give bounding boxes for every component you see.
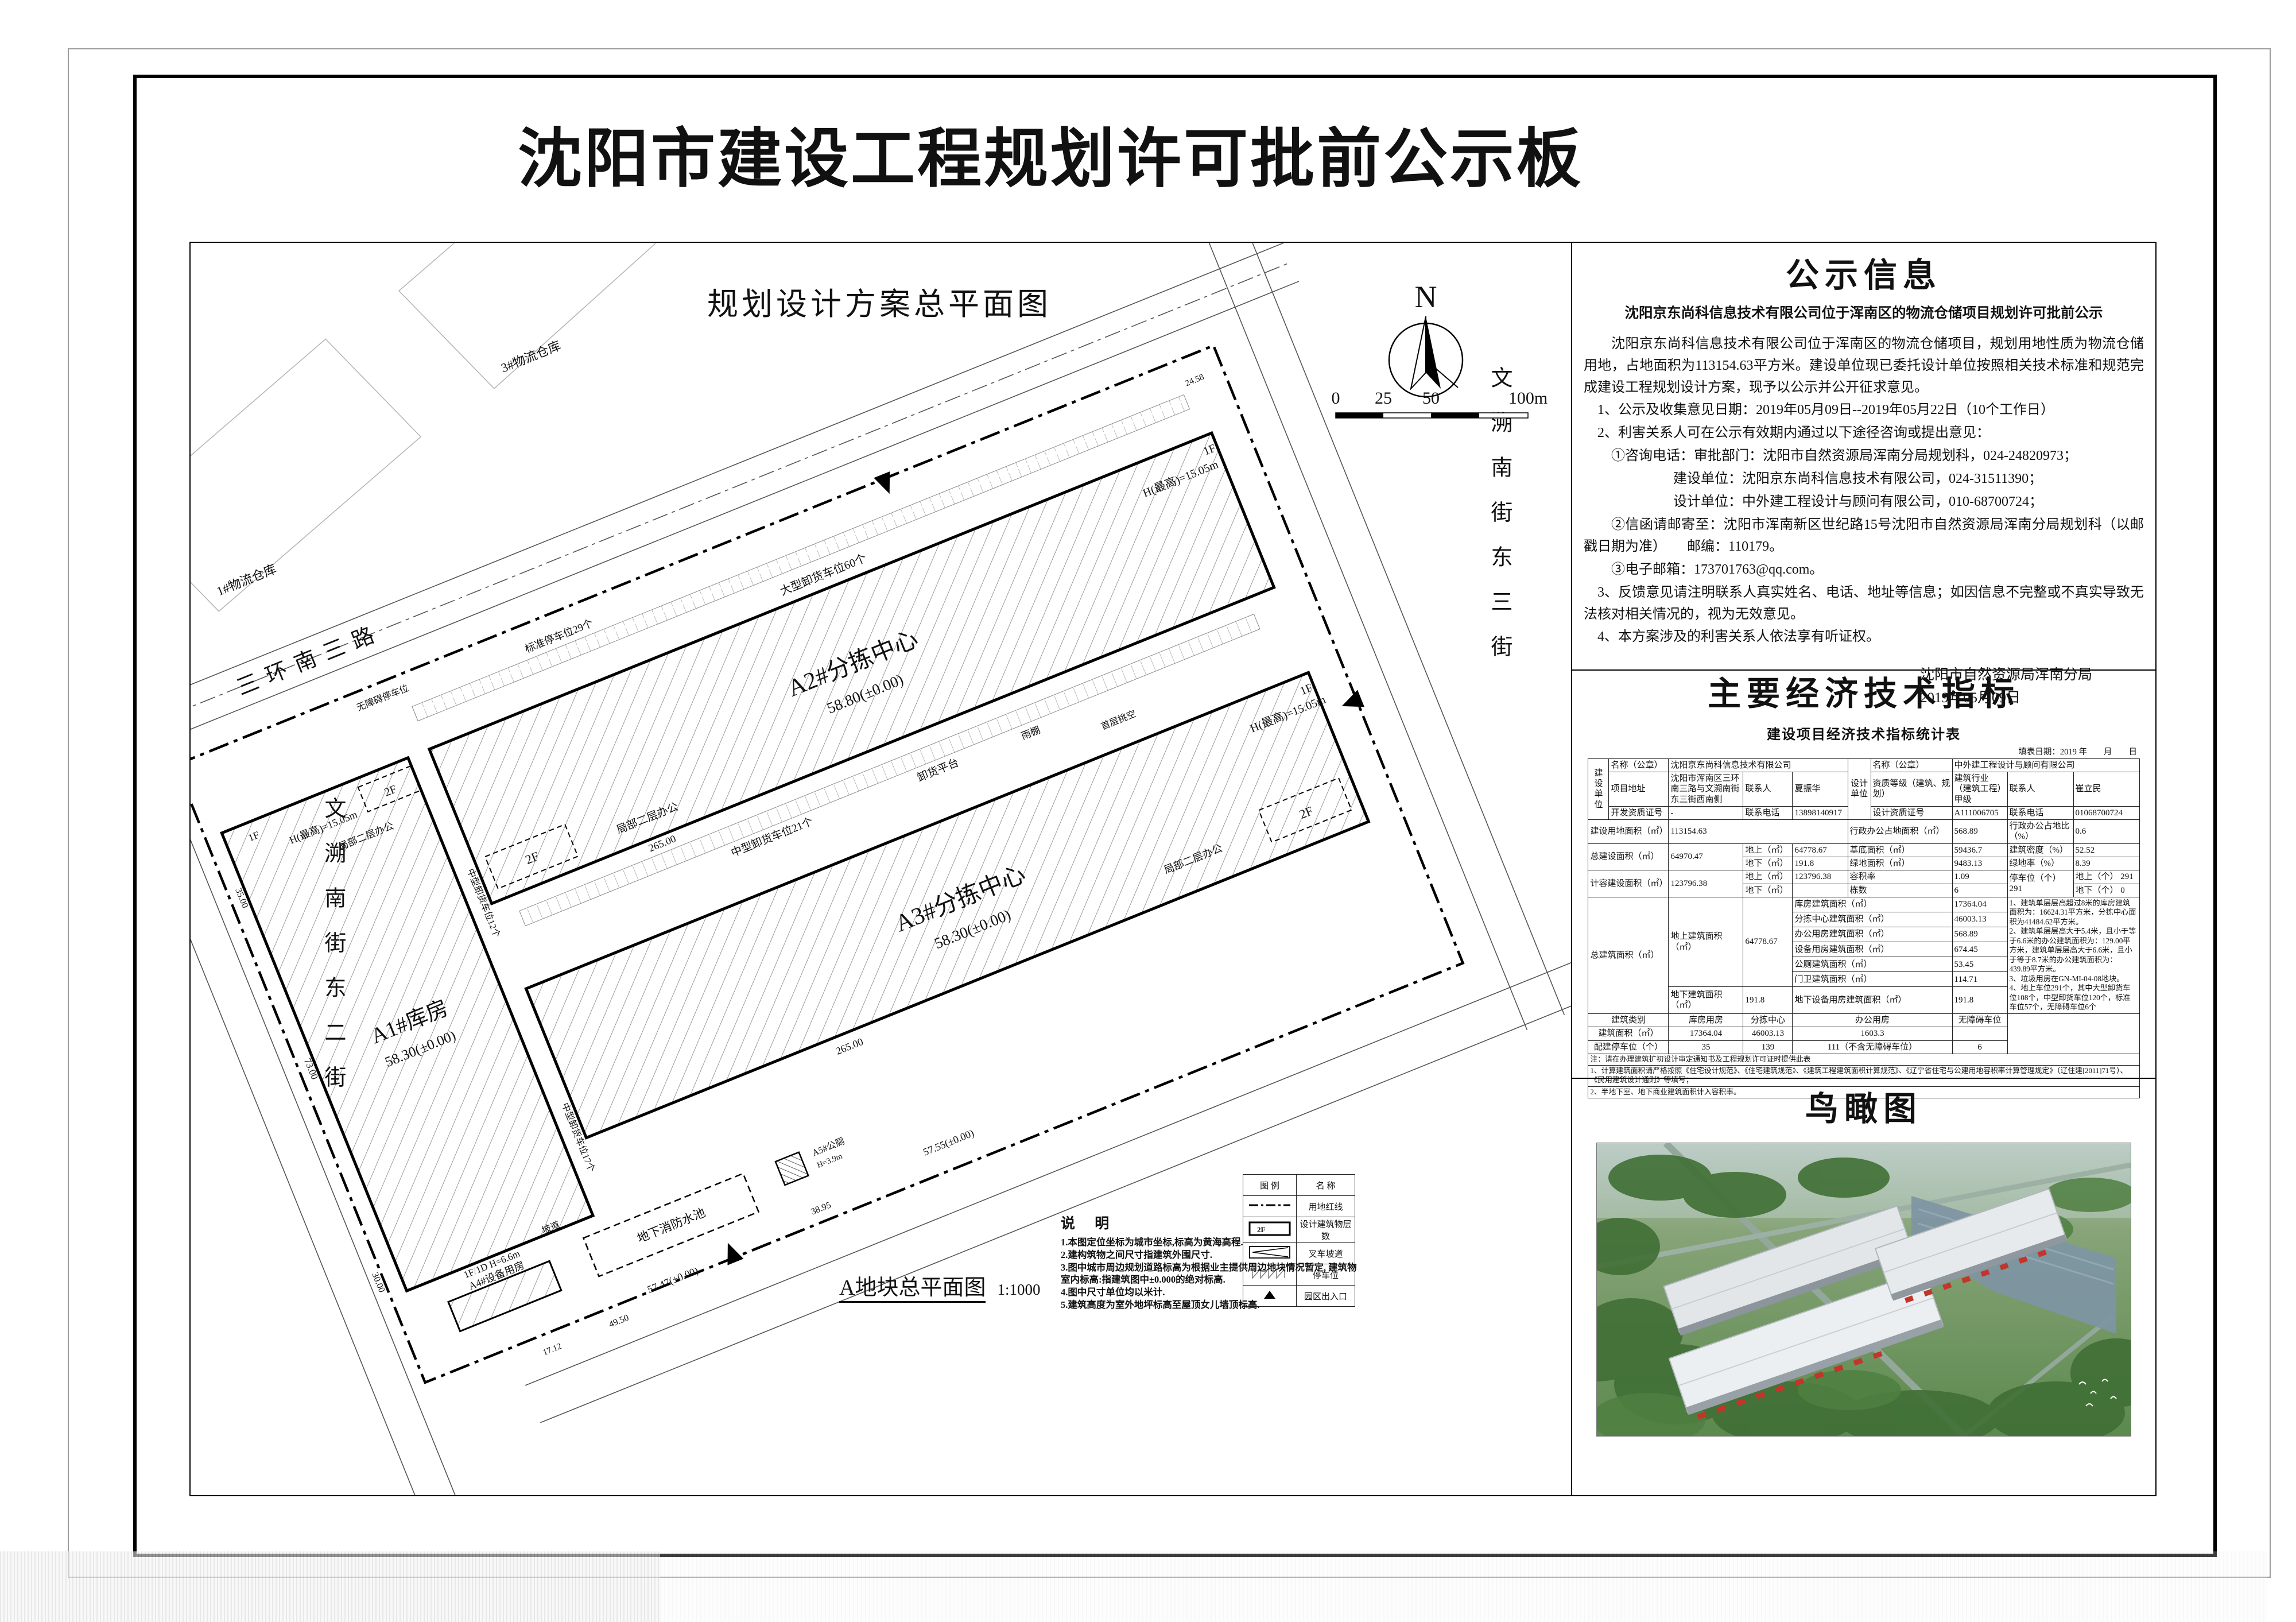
cell: 崔立民 xyxy=(2073,772,2139,806)
cell: 64778.67 xyxy=(1793,843,1848,857)
indicators-title: 主要经济技术指标 xyxy=(1572,675,2155,714)
table-row: 注：请在办理建筑扩初设计审定通知书及工程规划许可证时提供此表 xyxy=(1588,1054,2139,1066)
cell: 建筑类别 xyxy=(1588,1013,1669,1027)
parking-below-label: 地下（个） xyxy=(2076,886,2119,895)
cell: 114.71 xyxy=(1952,972,2007,987)
cell: 沈阳京东尚科信息技术有限公司 xyxy=(1669,758,1848,772)
cell: 行政办公占地比（%） xyxy=(2007,820,2073,844)
cell: 113154.63 xyxy=(1669,820,1848,844)
table-row: 建设单位 名称（公章） 沈阳京东尚科信息技术有限公司 设计单位 名称（公章） 中… xyxy=(1588,758,2139,772)
cell: 9483.13 xyxy=(1952,857,2007,870)
table-row: 建筑类别 库房用房 分拣中心 办公用房 无障碍车位 xyxy=(1588,1013,2139,1027)
table-notes: 1、建筑单层层高超过8米的库房建筑面积为：16624.31平方米，分拣中心面积为… xyxy=(2007,897,2139,1013)
cell: 191.8 xyxy=(1743,987,1793,1014)
table-row: 计容建设面积（㎡） 123796.38 地上（㎡） 123796.38 容积率 … xyxy=(1588,870,2139,884)
site-plan-drawing: A1#库房 58.30(±0.00) A2#分拣中心 58.80(±0.00) … xyxy=(191,243,1571,1495)
cell: 沈阳市浑南区三环南三路与文溯南街东三街西南侧 xyxy=(1669,772,1743,806)
notice-paragraph: 设计单位：中外建工程设计与顾问有限公司，010-68700724； xyxy=(1584,491,2144,513)
notice-paragraph: 沈阳京东尚科信息技术有限公司位于浑南区的物流仓储项目，规划用地性质为物流仓储用地… xyxy=(1584,334,2144,399)
cell: 分拣中心 xyxy=(1743,1013,1793,1027)
cell: 地下（㎡） xyxy=(1743,857,1793,870)
cell: 建筑行业（建筑工程）甲级 xyxy=(1952,772,2007,806)
cell: 公厕建筑面积（㎡） xyxy=(1793,957,1952,972)
cell: 开发资质证号 xyxy=(1609,806,1669,819)
cell: 办公用房建筑面积（㎡） xyxy=(1793,927,1952,942)
cell: 123796.38 xyxy=(1669,870,1743,897)
cell: 17364.04 xyxy=(1669,1027,1743,1040)
ann-void: 首层挑空 xyxy=(1099,709,1137,732)
indicators-table: 建设单位 名称（公章） 沈阳京东尚科信息技术有限公司 设计单位 名称（公章） 中… xyxy=(1588,758,2139,1099)
cell: 地上（㎡） xyxy=(1743,843,1793,857)
notice-paragraph: ①咨询电话：审批部门：沈阳市自然资源局浑南分局规划科，024-24820973； xyxy=(1584,446,2144,467)
cell: 46003.13 xyxy=(1952,912,2007,927)
cell: 联系电话 xyxy=(2007,806,2073,819)
cell: 名称（公章） xyxy=(1609,758,1669,772)
lv-3895: 38.95 xyxy=(809,1200,832,1217)
cell: 1.09 xyxy=(1952,870,2007,884)
cell: 办公用房 xyxy=(1793,1013,1952,1027)
lv-4950: 49.50 xyxy=(607,1313,630,1330)
cell: 123796.38 xyxy=(1793,870,1848,884)
ann-park-bf: 无障碍停车位 xyxy=(355,683,410,713)
building-a5 xyxy=(775,1152,808,1185)
cell: 基底面积（㎡） xyxy=(1848,843,1952,857)
cell: 地上（个） 291 xyxy=(2073,870,2139,884)
cell: 停车位（个） 291 xyxy=(2007,870,2073,897)
cell: 191.8 xyxy=(1952,987,2007,1014)
cell: 8.39 xyxy=(2073,857,2139,870)
plan-note-5: 5.建筑高度为室外地坪标高至屋顶女儿墙顶标高. xyxy=(1061,1299,1359,1311)
plan-note-3: 3.图中城市周边规划道路标高为根据业主提供周边地块情况暂定, 建筑物室内标高:指… xyxy=(1061,1261,1359,1287)
parking-above: 291 xyxy=(2120,872,2134,881)
notice-body: 沈阳京东尚科信息技术有限公司位于浑南区的物流仓储项目，规划用地性质为物流仓储用地… xyxy=(1584,334,2144,649)
cell: 联系电话 xyxy=(1743,806,1793,819)
indicators-table-title: 建设项目经济技术指标统计表 xyxy=(1572,723,2155,743)
cell: 夏振华 xyxy=(1793,772,1848,806)
cell: 联系人 xyxy=(2007,772,2073,806)
plan-caption-title: A地块总平面图 xyxy=(839,1276,986,1303)
plan-note-1: 1.本图定位坐标为城市坐标,标高为黄海高程. xyxy=(1061,1236,1359,1249)
cell: 地上建筑面积（㎡） xyxy=(1669,897,1743,986)
cell: 59436.7 xyxy=(1952,843,2007,857)
cell: 总建设面积（㎡） xyxy=(1588,843,1669,870)
scale-0: 0 xyxy=(1332,389,1340,408)
parking-total: 291 xyxy=(2010,884,2072,894)
cell: 53.45 xyxy=(1952,957,2007,972)
lv-5747: 57.47(±0.00) xyxy=(646,1264,700,1296)
cell: 资质等级（建筑、规划） xyxy=(1871,772,1952,806)
cell: A111006705 xyxy=(1952,806,2007,819)
legend-header-name: 名 称 xyxy=(1297,1175,1355,1196)
cell: 容积率 xyxy=(1848,870,1952,884)
cell: 64778.67 xyxy=(1743,897,1793,986)
cell: 计容建设面积（㎡） xyxy=(1588,870,1669,897)
cell: - xyxy=(1669,806,1743,819)
cell: 地下（个） 0 xyxy=(2073,884,2139,897)
notice-paragraph: 建设单位：沈阳京东尚科信息技术有限公司，024-31511390； xyxy=(1584,469,2144,490)
cell: 地下建筑面积（㎡） xyxy=(1669,987,1743,1014)
adjacent-label-3: 3#物流仓库 xyxy=(499,338,563,375)
cell: 139 xyxy=(1743,1040,1793,1054)
cell xyxy=(1952,1027,2007,1040)
cell: 568.89 xyxy=(1952,927,2007,942)
cell: 01068700724 xyxy=(2073,806,2139,819)
cell: 库房用房 xyxy=(1669,1013,1743,1027)
north-label: N xyxy=(1415,280,1437,314)
parking-above-label: 地上（个） xyxy=(2076,872,2119,881)
cell: 674.45 xyxy=(1952,942,2007,957)
cell: 绿地面积（㎡） xyxy=(1848,857,1952,870)
section-notice: 公示信息 沈阳京东尚科信息技术有限公司位于浑南区的物流仓储项目规划许可批前公示 … xyxy=(1572,243,2155,671)
scan-artifact-right xyxy=(660,1551,2267,1622)
cell: 地下（㎡） xyxy=(1743,884,1793,897)
cell: 地下设备用房建筑面积（㎡） xyxy=(1793,987,1952,1014)
scale-50: 50 xyxy=(1422,389,1440,408)
table-row: 总建设面积（㎡） 64970.47 地上（㎡） 64778.67 基底面积（㎡）… xyxy=(1588,843,2139,857)
cell: 库房建筑面积（㎡） xyxy=(1793,897,1952,912)
table-row: 总建筑面积（㎡） 地上建筑面积（㎡） 64778.67 库房建筑面积（㎡） 17… xyxy=(1588,897,2139,912)
cell: 64970.47 xyxy=(1669,843,1743,870)
cell: 设计资质证号 xyxy=(1871,806,1952,819)
cell: 无障碍车位 xyxy=(1952,1013,2007,1027)
cell: 行政办公占地面积（㎡） xyxy=(1848,820,1952,844)
notice-paragraph: ②信函请邮寄至：沈阳市浑南新区世纪路15号沈阳市自然资源局浑南分局规划科（以邮戳… xyxy=(1584,514,2144,558)
label-pool: 地下消防水池 xyxy=(635,1206,707,1245)
cell: 栋数 xyxy=(1848,884,1952,897)
parking-label: 停车位（个） xyxy=(2010,873,2072,884)
cell: 35 xyxy=(1669,1040,1743,1054)
cell: 名称（公章） xyxy=(1871,758,1952,772)
cell: 分拣中心建筑面积（㎡） xyxy=(1793,912,1952,927)
cell: 6 xyxy=(1952,1040,2007,1054)
road-label-left: 文溯南街东二街 xyxy=(321,797,346,1110)
north-arrow-icon: N xyxy=(1389,280,1463,397)
plan-note-4: 4.图中尺寸单位均以米计. xyxy=(1061,1286,1359,1299)
cell: 设计单位 xyxy=(1848,758,1871,819)
indicators-date: 填表日期：2019 年 月 日 xyxy=(1588,744,2139,758)
aerial-render xyxy=(1597,1143,2131,1436)
lv-5755: 57.55(±0.00) xyxy=(921,1127,976,1159)
cell: 建筑密度（%） xyxy=(2007,843,2073,857)
notice-paragraph: 4、本方案涉及的利害关系人依法享有听证权。 xyxy=(1584,626,2144,648)
plan-caption-scale: 1:1000 xyxy=(997,1281,1040,1298)
road-label-top: 三环南三路 xyxy=(234,620,386,700)
aerial-photo xyxy=(1596,1143,2131,1437)
notice-paragraph: ③电子邮箱：173701763@qq.com。 xyxy=(1584,559,2144,581)
parking-below: 0 xyxy=(2120,886,2125,895)
notice-title: 公示信息 xyxy=(1584,257,2144,295)
cell: 111（不含无障碍车位） xyxy=(1793,1040,1952,1054)
cell: 地上（㎡） xyxy=(1743,870,1793,884)
cell: 13898140917 xyxy=(1793,806,1848,819)
content-box: A1#库房 58.30(±0.00) A2#分拣中心 58.80(±0.00) … xyxy=(189,242,2157,1496)
cell: 绿地率（%） xyxy=(2007,857,2073,870)
notice-paragraph: 1、公示及收集意见日期：2019年05月09日--2019年05月22日（10个… xyxy=(1584,400,2144,421)
plan-notes: 说 明 1.本图定位坐标为城市坐标,标高为黄海高程. 2.建构筑物之间尺寸指建筑… xyxy=(1061,1212,1359,1311)
cell: 中外建工程设计与顾问有限公司 xyxy=(1952,758,2139,772)
notice-subtitle: 沈阳京东尚科信息技术有限公司位于浑南区的物流仓储项目规划许可批前公示 xyxy=(1584,302,2144,322)
plan-caption: A地块总平面图 1:1000 xyxy=(839,1269,1040,1301)
info-panel: 公示信息 沈阳京东尚科信息技术有限公司位于浑南区的物流仓储项目规划许可批前公示 … xyxy=(1571,243,2155,1495)
cell: 52.52 xyxy=(2073,843,2139,857)
scale-100m: 100m xyxy=(1508,389,1548,408)
table-row: 建设用地面积（㎡） 113154.63 行政办公占地面积（㎡） 568.89 行… xyxy=(1588,820,2139,844)
dim-265-b: 265.00 xyxy=(834,1036,864,1057)
adjacent-label-1: 1#物流仓库 xyxy=(215,562,278,598)
scale-25: 25 xyxy=(1375,389,1392,408)
cell: 门卫建筑面积（㎡） xyxy=(1793,972,1952,987)
notice-paragraph: 2、利害关系人可在公示有效期内通过以下途径咨询或提出意见： xyxy=(1584,423,2144,444)
cell: 建筑面积（㎡） xyxy=(1588,1027,1669,1040)
cell: 1603.3 xyxy=(1793,1027,1952,1040)
section-aerial: 鸟瞰图 xyxy=(1572,1079,2155,1494)
section-indicators: 主要经济技术指标 建设项目经济技术指标统计表 填表日期：2019 年 月 日 建… xyxy=(1572,671,2155,1079)
cell: 0.6 xyxy=(2073,820,2139,844)
cell: 568.89 xyxy=(1952,820,2007,844)
cell: 17364.04 xyxy=(1952,897,2007,912)
legend-header-symbol: 图 例 xyxy=(1243,1175,1297,1196)
dim-1712: 17.12 xyxy=(542,1342,563,1357)
cell-empty xyxy=(2007,1013,2139,1054)
cell: 联系人 xyxy=(1743,772,1793,806)
cell: 建设单位 xyxy=(1588,758,1609,819)
scale-bar: 0 25 50 100m xyxy=(1332,389,1548,418)
scan-artifact-left xyxy=(0,1551,660,1622)
cell: 建设用地面积（㎡） xyxy=(1588,820,1669,844)
plan-title: 规划设计方案总平面图 xyxy=(650,278,1109,324)
cell: 191.8 xyxy=(1793,857,1848,870)
cell xyxy=(1793,884,1848,897)
notice-paragraph: 3、反馈意见请注明联系人真实姓名、电话、地址等信息；如因信息不完整或不真实导致无… xyxy=(1584,582,2144,626)
cell: 46003.13 xyxy=(1743,1027,1793,1040)
aerial-title: 鸟瞰图 xyxy=(1572,1090,2155,1129)
dim-2458: 24.58 xyxy=(1184,373,1205,388)
page-title: 沈阳市建设工程规划许可批前公示板 xyxy=(189,79,1911,240)
cell: 总建筑面积（㎡） xyxy=(1588,897,1669,1013)
cell: 6 xyxy=(1952,884,2007,897)
ann-canopy: 雨棚 xyxy=(1019,725,1042,742)
plan-notes-title: 说 明 xyxy=(1061,1212,1359,1233)
table-footnote: 注：请在办理建筑扩初设计审定通知书及工程规划许可证时提供此表 xyxy=(1588,1054,2139,1066)
cell: 配建停车位（个） xyxy=(1588,1040,1669,1054)
notice-board: 沈阳市建设工程规划许可批前公示板 xyxy=(0,0,2296,1622)
cell: 设备用房建筑面积（㎡） xyxy=(1793,942,1952,957)
site-plan-panel: A1#库房 58.30(±0.00) A2#分拣中心 58.80(±0.00) … xyxy=(191,243,1571,1495)
cell: 项目地址 xyxy=(1609,772,1669,806)
plan-note-2: 2.建构筑物之间尺寸指建筑外围尺寸. xyxy=(1061,1249,1359,1261)
